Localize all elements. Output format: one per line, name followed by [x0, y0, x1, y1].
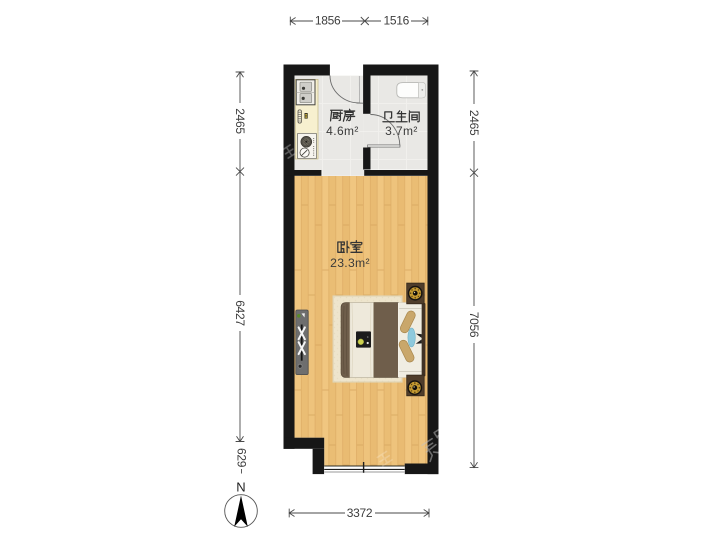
svg-text:N: N — [236, 480, 245, 495]
svg-text:3.7m²: 3.7m² — [385, 124, 418, 138]
svg-text:1516: 1516 — [384, 14, 410, 28]
svg-text:4.6m²: 4.6m² — [326, 124, 359, 138]
svg-text:6427: 6427 — [233, 300, 247, 326]
svg-text:3372: 3372 — [347, 506, 373, 520]
svg-text:2465: 2465 — [467, 110, 481, 136]
svg-text:2465: 2465 — [233, 108, 247, 134]
svg-text:1856: 1856 — [315, 14, 341, 28]
svg-text:629: 629 — [235, 448, 249, 468]
svg-text:7056: 7056 — [467, 312, 481, 338]
svg-text:23.3m²: 23.3m² — [330, 256, 370, 270]
